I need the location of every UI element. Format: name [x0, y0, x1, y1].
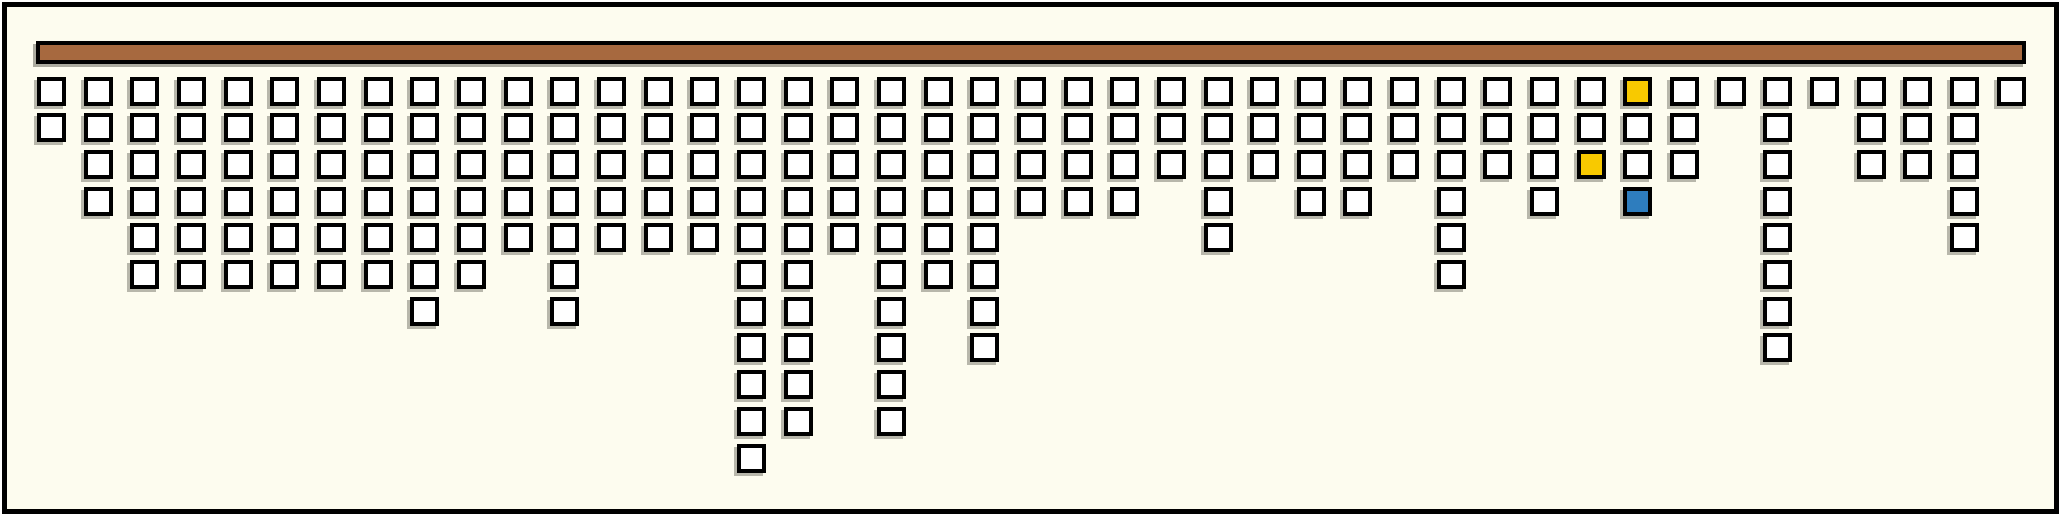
- unit-square: [970, 223, 999, 252]
- unit-square: [224, 113, 253, 142]
- unit-square: [1343, 77, 1372, 106]
- unit-square: [1250, 113, 1279, 142]
- unit-square: [737, 223, 766, 252]
- unit-square: [1763, 77, 1792, 106]
- unit-square: [924, 150, 953, 179]
- unit-square: [1390, 150, 1419, 179]
- unit-square: [644, 150, 673, 179]
- unit-square: [784, 77, 813, 106]
- unit-square: [1204, 187, 1233, 216]
- unit-square: [1064, 150, 1093, 179]
- unit-square: [550, 77, 579, 106]
- unit-square: [737, 77, 766, 106]
- unit-square: [597, 223, 626, 252]
- unit-square: [270, 113, 299, 142]
- unit-square: [1204, 77, 1233, 106]
- unit-square: [1763, 187, 1792, 216]
- unit-square: [550, 113, 579, 142]
- unit-square: [410, 77, 439, 106]
- unit-square: [84, 187, 113, 216]
- unit-square: [1530, 113, 1559, 142]
- unit-square: [1763, 260, 1792, 289]
- unit-square: [924, 77, 953, 106]
- unit-square: [270, 77, 299, 106]
- unit-square: [690, 77, 719, 106]
- unit-square: [270, 260, 299, 289]
- unit-square: [1950, 77, 1979, 106]
- unit-square: [737, 297, 766, 326]
- unit-square: [597, 77, 626, 106]
- unit-square: [1297, 150, 1326, 179]
- unit-square: [1110, 150, 1139, 179]
- unit-square: [1157, 77, 1186, 106]
- unit-square: [737, 187, 766, 216]
- unit-square: [1623, 150, 1652, 179]
- unit-square: [457, 187, 486, 216]
- unit-square: [1390, 77, 1419, 106]
- unit-square: [1437, 150, 1466, 179]
- unit-square: [1437, 223, 1466, 252]
- unit-square: [830, 113, 859, 142]
- unit-square: [737, 370, 766, 399]
- unit-square: [1204, 150, 1233, 179]
- unit-square: [130, 113, 159, 142]
- unit-square: [457, 113, 486, 142]
- unit-square: [737, 407, 766, 436]
- unit-square: [1530, 187, 1559, 216]
- unit-square: [690, 187, 719, 216]
- unit-square: [84, 77, 113, 106]
- top-bar: [36, 41, 2026, 64]
- unit-square: [317, 187, 346, 216]
- unit-square: [1530, 77, 1559, 106]
- unit-square: [970, 333, 999, 362]
- unit-square: [877, 77, 906, 106]
- unit-square: [1437, 187, 1466, 216]
- unit-square: [177, 223, 206, 252]
- unit-square: [1064, 77, 1093, 106]
- unit-square: [457, 223, 486, 252]
- unit-square: [1297, 187, 1326, 216]
- unit-square: [410, 297, 439, 326]
- unit-square: [970, 150, 999, 179]
- unit-square: [1297, 77, 1326, 106]
- unit-square: [457, 150, 486, 179]
- unit-square: [830, 77, 859, 106]
- unit-square: [877, 187, 906, 216]
- unit-square: [504, 77, 533, 106]
- unit-square: [84, 150, 113, 179]
- unit-square: [1577, 77, 1606, 106]
- unit-square: [1763, 333, 1792, 362]
- unit-square: [550, 223, 579, 252]
- unit-square: [1204, 113, 1233, 142]
- unit-square: [737, 150, 766, 179]
- unit-square: [1717, 77, 1746, 106]
- unit-square: [270, 223, 299, 252]
- unit-square: [270, 187, 299, 216]
- unit-square: [1250, 150, 1279, 179]
- unit-square: [504, 187, 533, 216]
- unit-square: [410, 223, 439, 252]
- unit-square: [130, 150, 159, 179]
- unit-square: [597, 113, 626, 142]
- unit-square: [1064, 113, 1093, 142]
- unit-square: [1437, 77, 1466, 106]
- unit-square: [504, 223, 533, 252]
- unit-square: [1157, 150, 1186, 179]
- unit-square: [1110, 113, 1139, 142]
- unit-square: [1064, 187, 1093, 216]
- unit-square: [224, 77, 253, 106]
- unit-square: [1903, 150, 1932, 179]
- unit-square: [1017, 150, 1046, 179]
- unit-square: [550, 187, 579, 216]
- unit-square: [84, 113, 113, 142]
- unit-square: [644, 223, 673, 252]
- unit-square: [270, 150, 299, 179]
- unit-square: [1157, 113, 1186, 142]
- unit-square: [877, 150, 906, 179]
- unit-square: [1250, 77, 1279, 106]
- unit-square: [1343, 187, 1372, 216]
- unit-square: [410, 150, 439, 179]
- unit-square: [410, 260, 439, 289]
- unit-square: [877, 223, 906, 252]
- unit-square: [877, 297, 906, 326]
- unit-square: [130, 187, 159, 216]
- unit-square: [1950, 113, 1979, 142]
- unit-square: [1577, 113, 1606, 142]
- unit-square: [737, 260, 766, 289]
- unit-square: [1857, 77, 1886, 106]
- unit-square: [1343, 150, 1372, 179]
- unit-square: [924, 113, 953, 142]
- unit-square: [1670, 113, 1699, 142]
- unit-square: [877, 407, 906, 436]
- unit-square: [737, 444, 766, 473]
- unit-square: [317, 223, 346, 252]
- unit-square: [1997, 77, 2026, 106]
- unit-square: [644, 187, 673, 216]
- unit-square: [364, 150, 393, 179]
- unit-square: [784, 407, 813, 436]
- unit-square: [784, 223, 813, 252]
- unit-square: [1017, 187, 1046, 216]
- unit-square: [37, 113, 66, 142]
- unit-square: [970, 260, 999, 289]
- unit-square: [1530, 150, 1559, 179]
- unit-square: [970, 113, 999, 142]
- unit-square: [317, 113, 346, 142]
- unit-square: [1110, 187, 1139, 216]
- unit-square: [364, 260, 393, 289]
- unit-square: [830, 223, 859, 252]
- unit-square: [690, 223, 719, 252]
- unit-square: [550, 297, 579, 326]
- unit-square: [970, 297, 999, 326]
- unit-square: [550, 260, 579, 289]
- unit-square: [924, 260, 953, 289]
- unit-square: [877, 370, 906, 399]
- unit-square: [1857, 150, 1886, 179]
- unit-square: [1763, 150, 1792, 179]
- unit-square: [784, 187, 813, 216]
- unit-square: [597, 187, 626, 216]
- unit-square: [364, 187, 393, 216]
- unit-square: [877, 333, 906, 362]
- unit-square: [224, 260, 253, 289]
- unit-square: [1950, 150, 1979, 179]
- unit-square: [317, 150, 346, 179]
- unit-square: [1763, 223, 1792, 252]
- unit-square: [597, 150, 626, 179]
- unit-square: [224, 150, 253, 179]
- unit-square: [1763, 113, 1792, 142]
- unit-square: [1110, 77, 1139, 106]
- unit-square: [784, 333, 813, 362]
- unit-square: [317, 260, 346, 289]
- unit-square: [364, 223, 393, 252]
- unit-square: [1483, 113, 1512, 142]
- unit-square: [177, 77, 206, 106]
- unit-square: [1483, 150, 1512, 179]
- unit-square: [224, 223, 253, 252]
- unit-square: [1670, 77, 1699, 106]
- unit-square: [737, 333, 766, 362]
- unit-square: [1763, 297, 1792, 326]
- unit-square: [1437, 113, 1466, 142]
- unit-square: [1204, 223, 1233, 252]
- unit-square: [737, 113, 766, 142]
- unit-square: [410, 113, 439, 142]
- unit-square-highlight-yellow: [1577, 150, 1606, 179]
- unit-square: [644, 113, 673, 142]
- unit-square: [1950, 223, 1979, 252]
- unit-square: [690, 113, 719, 142]
- unit-square: [690, 150, 719, 179]
- unit-square: [1437, 260, 1466, 289]
- unit-square: [224, 187, 253, 216]
- unit-square: [410, 187, 439, 216]
- chart-canvas: [0, 0, 2062, 517]
- unit-square: [784, 260, 813, 289]
- unit-square: [784, 297, 813, 326]
- unit-square: [457, 260, 486, 289]
- unit-square-highlight-yellow: [1623, 77, 1652, 106]
- unit-square: [1950, 187, 1979, 216]
- unit-square: [317, 77, 346, 106]
- unit-square: [1017, 77, 1046, 106]
- unit-square: [364, 113, 393, 142]
- unit-square: [1810, 77, 1839, 106]
- unit-square: [1623, 113, 1652, 142]
- unit-square: [177, 150, 206, 179]
- unit-square: [1857, 113, 1886, 142]
- unit-square: [970, 77, 999, 106]
- unit-square: [830, 150, 859, 179]
- unit-square: [1343, 113, 1372, 142]
- unit-square: [784, 113, 813, 142]
- unit-square-highlight-blue: [1623, 187, 1652, 216]
- unit-square: [130, 223, 159, 252]
- unit-square: [877, 113, 906, 142]
- unit-square: [784, 150, 813, 179]
- unit-square: [457, 77, 486, 106]
- unit-square: [550, 150, 579, 179]
- unit-square: [1390, 113, 1419, 142]
- unit-square: [1903, 113, 1932, 142]
- unit-square: [130, 77, 159, 106]
- unit-square: [504, 150, 533, 179]
- unit-square: [177, 113, 206, 142]
- unit-square: [177, 260, 206, 289]
- unit-square: [37, 77, 66, 106]
- unit-square: [924, 187, 953, 216]
- unit-square: [1483, 77, 1512, 106]
- unit-square: [1903, 77, 1932, 106]
- unit-square: [130, 260, 159, 289]
- unit-square: [924, 223, 953, 252]
- unit-square: [970, 187, 999, 216]
- unit-square: [1017, 113, 1046, 142]
- unit-square: [364, 77, 393, 106]
- unit-square: [830, 187, 859, 216]
- unit-square: [177, 187, 206, 216]
- unit-square: [504, 113, 533, 142]
- unit-square: [784, 370, 813, 399]
- unit-square: [1670, 150, 1699, 179]
- unit-square: [1297, 113, 1326, 142]
- unit-square: [877, 260, 906, 289]
- unit-square: [644, 77, 673, 106]
